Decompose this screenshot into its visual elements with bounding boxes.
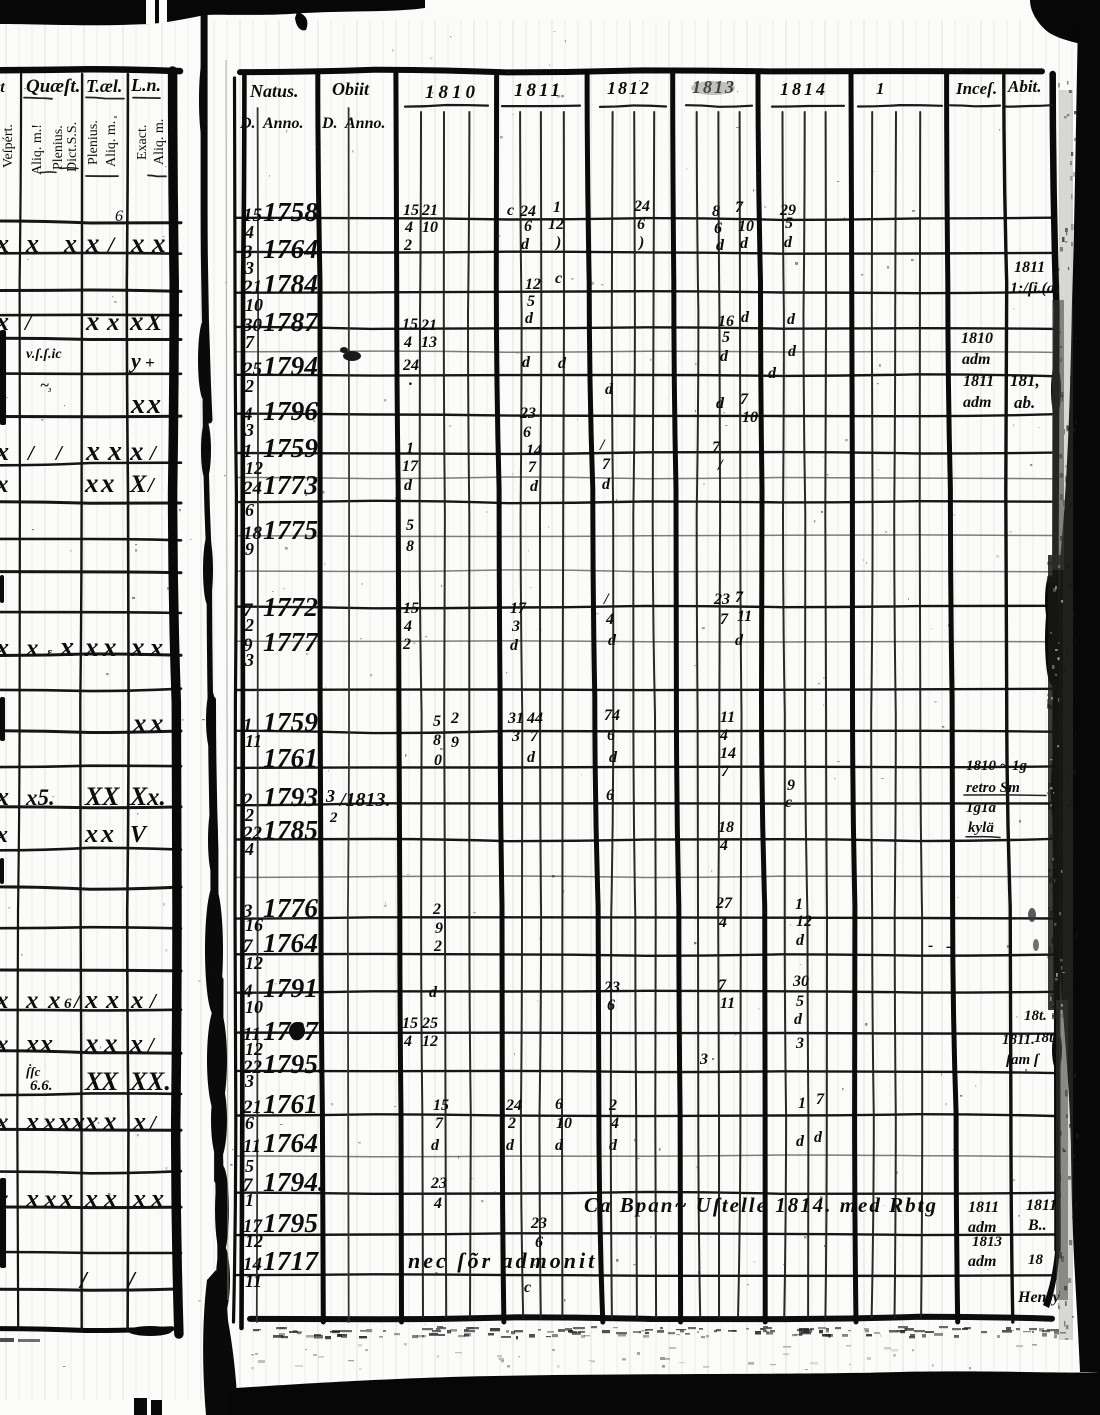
svg-text:x: x [149,633,163,662]
svg-text:Obiit: Obiit [332,79,370,99]
svg-text:2: 2 [329,810,338,826]
svg-text:): ) [637,234,644,251]
svg-text:x: x [84,1106,99,1136]
svg-text:/1813.: /1813. [338,789,391,811]
svg-text:X: X [145,310,163,336]
svg-text:Ca Bpan~ Uſtelle 1814. med Rbt: Ca Bpan~ Uſtelle 1814. med Rbtg [584,1193,938,1217]
svg-text:10: 10 [556,1115,572,1132]
svg-text:5: 5 [722,329,730,346]
svg-text:7: 7 [816,1091,825,1108]
svg-text:x: x [132,708,147,738]
svg-text:2: 2 [608,1097,617,1114]
svg-text:2: 2 [432,901,441,918]
svg-text:c: c [785,794,792,811]
svg-text:10: 10 [245,997,263,1017]
svg-text:d: d [716,237,725,254]
svg-text:4: 4 [719,837,728,854]
svg-text:x: x [129,306,144,336]
svg-text:15: 15 [403,202,419,219]
svg-text:4: 4 [244,222,254,242]
svg-text:X: X [129,1067,148,1096]
svg-text:ẛſc: ẛſc [26,1064,41,1079]
svg-text:13: 13 [421,334,437,351]
svg-text:21: 21 [421,202,438,219]
svg-text:2: 2 [244,615,254,635]
svg-text:Natus.: Natus. [249,81,299,101]
svg-text:2: 2 [433,938,442,955]
svg-text:d: d [506,1137,515,1154]
svg-text:4: 4 [244,839,254,859]
svg-text:d: d [521,236,530,253]
svg-text:6: 6 [245,1113,254,1133]
svg-text:1810 ~ 1g: 1810 ~ 1g [966,758,1028,774]
svg-text:1759: 1759 [263,706,318,737]
svg-text:x: x [103,1184,117,1213]
svg-text:1: 1 [798,1095,806,1112]
svg-text:18t: 18t [1034,1030,1054,1046]
svg-text:1811: 1811 [1026,1197,1057,1214]
svg-text:1811.: 1811. [1002,1032,1035,1048]
svg-text:21: 21 [420,317,437,334]
svg-text:6: 6 [606,787,614,804]
svg-text:12: 12 [796,913,812,930]
svg-text:x: x [0,437,9,466]
svg-text:7: 7 [528,459,537,476]
svg-text:2: 2 [244,805,254,825]
svg-text:1810: 1810 [961,330,993,347]
svg-text:1773: 1773 [263,469,318,500]
svg-text:16: 16 [718,313,734,330]
svg-text:5: 5 [796,993,804,1010]
svg-text:d: d [735,632,744,649]
svg-text:1811: 1811 [1014,259,1045,276]
svg-text:x: x [0,782,9,811]
svg-text:x: x [0,229,9,258]
svg-text:d: d [429,984,438,1001]
svg-text:6: 6 [523,424,531,441]
svg-text:8: 8 [406,538,414,555]
svg-text:5: 5 [245,1156,254,1176]
svg-text:adm: adm [962,351,990,368]
svg-text:Veſpért.: Veſpért. [1,124,16,168]
svg-text:x: x [84,1028,99,1058]
svg-text:x: x [102,632,117,662]
svg-text:Dict.S.S.: Dict.S.S. [65,122,80,172]
svg-text:x: x [130,389,145,420]
svg-text:1: 1 [406,440,414,457]
svg-text:d: d [716,395,725,412]
svg-text:rt: rt [0,79,5,96]
svg-text:d: d [787,311,796,328]
svg-text:Inceſ.: Inceſ. [955,79,997,98]
svg-text:d: d [741,309,750,326]
svg-text:12: 12 [245,458,263,478]
svg-text:5: 5 [433,713,441,730]
svg-text:x: x [132,1107,146,1136]
svg-text:x: x [57,1107,71,1136]
svg-text:x: x [105,985,119,1014]
svg-text:4: 4 [610,1115,619,1132]
svg-text:5: 5 [785,215,793,232]
svg-text:x: x [0,1031,9,1058]
svg-text:7: 7 [735,589,744,606]
svg-text:1785.: 1785. [263,814,325,845]
svg-text:d: d [525,310,534,327]
svg-text:23: 23 [530,1215,547,1232]
svg-text:11: 11 [243,1136,261,1157]
svg-text:x: x [146,389,161,420]
svg-text:ſam ſ: ſam ſ [1006,1052,1041,1068]
svg-text:7: 7 [735,199,744,216]
svg-text:adm: adm [963,394,991,411]
svg-text:x: x [129,1029,143,1058]
svg-text:74: 74 [604,707,620,724]
svg-text:d: d [794,1011,803,1028]
svg-text:Quæſt.: Quæſt. [26,76,80,97]
svg-text:X: X [101,782,120,811]
svg-text:x: x [0,1109,9,1136]
svg-text:1758: 1758 [263,196,318,227]
svg-text:d: d [555,1137,564,1154]
svg-text:x: x [25,1029,39,1058]
svg-text:23: 23 [430,1175,447,1192]
svg-text:7: 7 [530,728,539,745]
svg-text:x: x [130,632,145,662]
svg-text:7: 7 [718,977,727,994]
svg-text:x5.: x5. [25,785,55,810]
svg-text:1764: 1764 [263,233,318,264]
svg-text:d: d [609,749,618,766]
svg-text:23: 23 [713,591,730,608]
svg-text:11: 11 [720,995,735,1012]
svg-text:x: x [59,632,74,663]
svg-text:25: 25 [421,1015,438,1032]
svg-text:X: X [129,782,148,811]
svg-text:x: x [107,436,122,467]
svg-text:6: 6 [714,220,722,237]
svg-text:1787: 1787 [263,306,319,337]
svg-text:x: x [43,1186,57,1213]
svg-text:Henry: Henry [1017,1289,1061,1306]
svg-text:x: x [71,1107,85,1136]
svg-text:12: 12 [422,1033,438,1050]
svg-text:nec ſõr admonit: nec ſõr admonit [408,1248,597,1273]
svg-text:d: d [740,235,749,252]
svg-text:6.6.: 6.6. [30,1078,53,1094]
svg-text:+: + [145,353,155,372]
svg-text:1775: 1775 [263,514,318,545]
svg-text:d: d [527,749,536,766]
svg-text:3: 3 [325,786,335,806]
svg-text:Aliq. m.: Aliq. m. [152,119,167,165]
svg-text:1811: 1811 [963,373,994,390]
svg-text:6: 6 [637,216,645,233]
svg-text:kylä: kylä [968,820,994,836]
svg-text:10: 10 [738,218,754,235]
svg-text:5: 5 [527,293,535,310]
svg-text:2: 2 [244,376,254,396]
svg-text:1777: 1777 [263,626,319,657]
svg-text:Plenius.: Plenius. [86,120,101,165]
svg-text:x: x [151,228,166,258]
svg-text:d: d [530,478,539,495]
svg-text:₃: ₃ [48,382,52,393]
svg-text:x: x [130,987,144,1014]
svg-text:x.: x. [146,784,166,811]
svg-text:v.ſ.ſ.ic: v.ſ.ſ.ic [26,347,62,362]
svg-text:x: x [25,1107,39,1136]
svg-text:d: d [602,476,611,493]
svg-text:1791: 1791 [263,972,318,1003]
svg-text:x: x [100,468,115,498]
svg-text:3: 3 [511,728,520,745]
svg-text:9: 9 [245,539,254,559]
svg-text:1: 1 [795,896,803,913]
svg-text:x: x [84,468,99,498]
svg-text:7: 7 [740,391,749,408]
svg-text:10: 10 [422,219,438,236]
svg-text:12: 12 [525,276,541,293]
svg-text:d: d [609,1137,618,1154]
svg-text:x: x [42,1109,56,1136]
svg-text:X.: X. [146,1067,171,1096]
svg-text:.: . [409,372,413,389]
svg-text:15: 15 [402,1015,418,1032]
svg-text:18: 18 [718,819,734,836]
svg-text:1: 1 [245,1190,254,1210]
svg-text:24: 24 [242,478,262,499]
svg-text:30: 30 [792,973,809,990]
svg-text:6: 6 [607,727,615,744]
svg-text:c: c [555,270,562,287]
svg-text:18: 18 [1028,1252,1044,1268]
svg-text:1794: 1794 [263,350,318,381]
svg-text:d: d [788,343,797,360]
svg-text:5: 5 [406,517,414,534]
svg-text:23: 23 [603,979,620,996]
svg-text:Aliq. m.!: Aliq. m.! [30,124,45,175]
svg-text:c: c [507,202,514,219]
svg-text:1793: 1793 [263,781,318,812]
svg-text:x: x [0,471,9,498]
svg-text:7: 7 [602,456,611,473]
svg-text:6: 6 [64,996,72,1012]
svg-text:X: X [129,471,148,498]
svg-text:15: 15 [402,316,418,333]
svg-text:d: d [431,1137,440,1154]
svg-text:3: 3 [244,650,254,670]
svg-text:3: 3 [244,420,254,440]
svg-text:7: 7 [721,763,730,780]
svg-text:2: 2 [507,1115,516,1132]
svg-text:d: d [558,355,567,372]
svg-text:x: x [84,632,99,662]
svg-text:4: 4 [403,1033,412,1050]
svg-text:6: 6 [607,997,615,1014]
svg-text:D.: D. [239,115,256,132]
svg-text:x: x [63,229,77,258]
svg-text:x: x [100,819,114,848]
svg-text:x: x [0,633,9,662]
svg-text:1:/ſi.(a): 1:/ſi.(a) [1010,280,1060,297]
svg-text:1811: 1811 [514,80,563,101]
svg-text:x: x [25,229,39,258]
svg-text:x: x [59,1184,73,1213]
svg-text:x: x [84,819,98,848]
svg-text:31: 31 [507,710,524,727]
svg-text:14: 14 [720,745,736,762]
svg-text:d: d [522,354,531,371]
svg-text:1794.: 1794. [263,1166,325,1197]
svg-text:Anno.: Anno. [262,115,303,132]
svg-text:17: 17 [402,458,419,475]
svg-text:x: x [85,306,100,336]
svg-text:6: 6 [555,1096,563,1113]
svg-text:0: 0 [434,752,442,769]
svg-text:X: X [84,782,103,811]
svg-text:1795: 1795 [263,1207,318,1238]
svg-text:9: 9 [451,734,459,751]
svg-text:4: 4 [404,219,413,236]
svg-text:4: 4 [719,727,728,744]
svg-text:1: 1 [876,79,885,98]
svg-text:16: 16 [245,915,263,935]
svg-text:1761: 1761 [263,742,318,773]
svg-text:11: 11 [245,731,262,751]
svg-text:d: d [814,1129,823,1146]
svg-text:6: 6 [245,500,254,520]
svg-text:x: x [149,708,164,738]
svg-text:14: 14 [526,442,542,459]
svg-text:d: d [720,348,729,365]
svg-text:ε: ε [47,644,53,659]
svg-text:x: x [25,987,39,1014]
svg-text:10: 10 [742,409,758,426]
svg-text:L.n.: L.n. [130,75,161,95]
svg-text:x: x [39,1029,53,1058]
svg-text:12: 12 [548,216,564,233]
svg-text:4: 4 [718,914,727,931]
svg-text:11: 11 [720,709,735,726]
svg-text:3: 3 [244,258,254,278]
svg-text:2: 2 [450,710,459,727]
svg-text:7: 7 [435,1115,444,1132]
svg-text:x: x [0,822,8,848]
svg-text:retro Sm: retro Sm [966,780,1020,796]
svg-text:15: 15 [433,1097,449,1114]
svg-text:24: 24 [633,198,650,215]
svg-text:Abit.: Abit. [1007,77,1042,96]
svg-text:x: x [84,1184,98,1213]
svg-text:x: x [0,987,9,1014]
svg-text:Exact.: Exact. [135,125,150,160]
svg-text:3: 3 [244,1071,254,1091]
svg-text:1761: 1761 [263,1088,318,1119]
svg-text:2: 2 [403,237,412,254]
svg-text:3: 3 [699,1051,708,1068]
svg-text:x: x [103,1028,118,1058]
svg-text:9: 9 [787,777,795,794]
svg-text:d: d [404,477,413,494]
svg-text:1812: 1812 [607,78,651,98]
svg-text:6: 6 [524,218,532,235]
svg-text:1759: 1759 [263,432,318,463]
svg-text:x: x [25,635,39,662]
svg-text:T.æl.: T.æl. [86,76,122,96]
svg-text:x: x [129,436,144,466]
svg-text:d: d [510,637,519,654]
svg-text:12: 12 [245,1039,263,1059]
svg-text:1764: 1764 [263,927,318,958]
svg-text:6: 6 [115,208,123,225]
svg-text:Aliq. m.: Aliq. m. [104,121,119,167]
svg-text:17: 17 [510,600,527,617]
svg-text:24: 24 [505,1097,522,1114]
svg-text:4: 4 [605,611,614,628]
svg-text:18t.: 18t. [1024,1008,1047,1024]
svg-text:15: 15 [403,600,419,617]
svg-text:1717: 1717 [263,1245,319,1276]
svg-text:8: 8 [433,732,441,749]
svg-text:1813: 1813 [972,1234,1003,1250]
svg-text:ab.: ab. [1014,393,1035,412]
svg-text:11: 11 [737,608,752,625]
svg-text:4: 4 [433,1195,442,1212]
svg-text:12: 12 [245,1231,263,1251]
svg-text:d: d [768,365,777,382]
svg-text:1776: 1776 [263,892,318,923]
svg-text:181,: 181, [1010,371,1040,390]
svg-text:9: 9 [435,920,443,937]
svg-text:7: 7 [712,439,721,456]
svg-text:23: 23 [519,405,536,422]
svg-text:2: 2 [402,636,411,653]
svg-text:12: 12 [245,953,263,973]
svg-text:d: d [796,1133,805,1150]
svg-text:adm: adm [968,1253,996,1270]
svg-text:1g1a: 1g1a [966,800,997,816]
svg-text:x: x [47,987,61,1014]
svg-text:Plenius.: Plenius. [51,125,66,170]
svg-text:7: 7 [720,611,729,628]
svg-text:d: d [796,932,805,949]
svg-text:1764: 1764 [263,1127,318,1158]
svg-text:7: 7 [245,332,255,352]
svg-text:X: X [100,1067,119,1096]
svg-text:1814: 1814 [780,79,828,99]
svg-text:d: d [784,234,793,251]
svg-text:4: 4 [403,334,412,351]
svg-text:B..: B.. [1027,1217,1047,1234]
svg-text:V: V [130,822,148,848]
svg-text:x: x [150,1184,164,1213]
svg-text:c: c [524,1279,531,1296]
svg-text:x: x [132,1184,146,1213]
svg-text:3: 3 [795,1035,804,1052]
svg-text:11: 11 [245,1271,262,1291]
svg-text:10: 10 [245,295,263,315]
svg-text:-: - [928,937,933,954]
svg-text:d: d [605,381,614,398]
svg-text:x: x [84,985,98,1014]
svg-text:x: x [106,309,120,336]
svg-text:x: x [130,228,145,258]
svg-text:1: 1 [553,199,561,216]
svg-text:x: x [85,228,100,258]
svg-text:Anno.: Anno. [344,115,385,132]
svg-text:44: 44 [526,710,543,727]
svg-text:1811: 1811 [968,1199,999,1216]
